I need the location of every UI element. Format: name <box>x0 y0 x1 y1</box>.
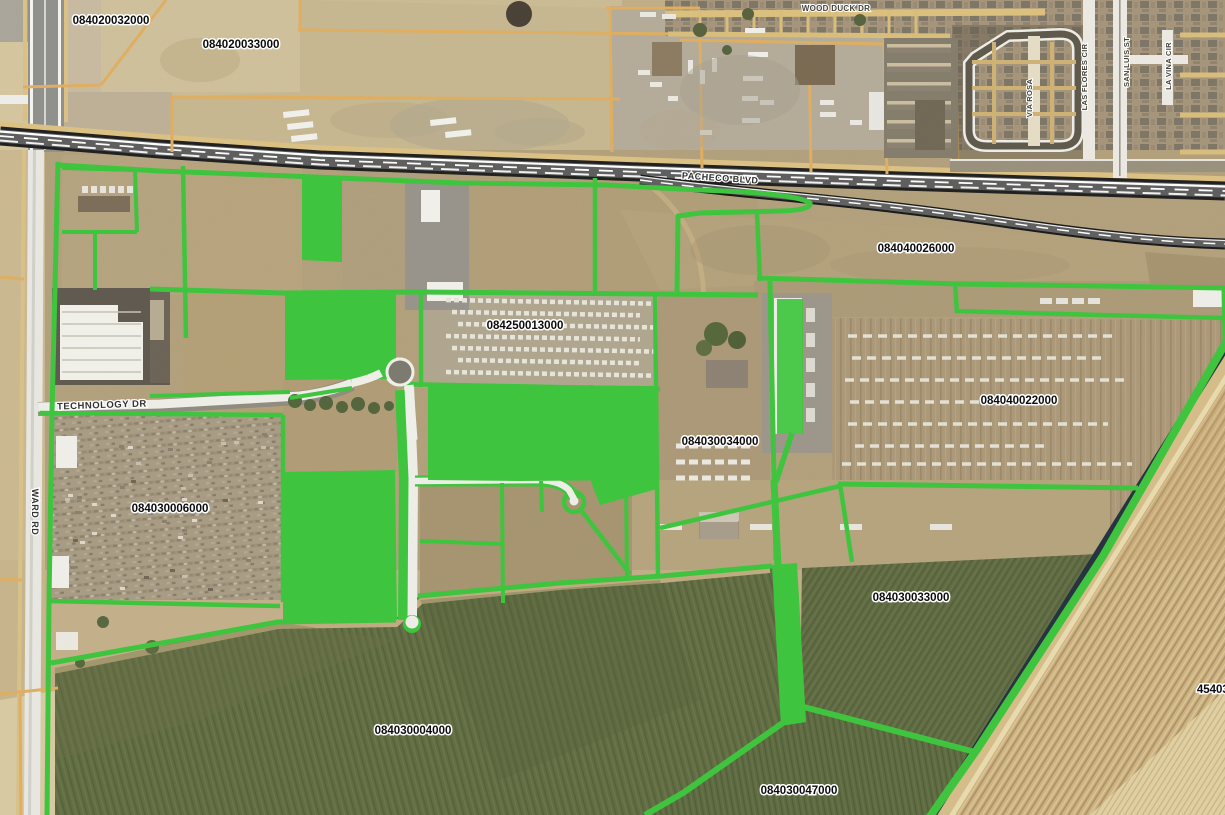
svg-text:VIA ROSA: VIA ROSA <box>1025 79 1034 118</box>
svg-text:084030004000: 084030004000 <box>375 725 452 737</box>
svg-text:LA VINA CIR: LA VINA CIR <box>1164 42 1173 90</box>
svg-text:084020032000: 084020032000 <box>73 15 150 27</box>
svg-text:084250013000: 084250013000 <box>487 320 564 332</box>
svg-text:084040022000: 084040022000 <box>981 395 1058 407</box>
svg-text:454030: 454030 <box>1197 684 1225 696</box>
svg-text:084040026000: 084040026000 <box>878 243 955 255</box>
svg-text:084030033000: 084030033000 <box>873 592 950 604</box>
svg-text:LAS FLORES CIR: LAS FLORES CIR <box>1080 43 1089 110</box>
svg-text:SAN LUIS ST: SAN LUIS ST <box>1122 37 1131 87</box>
svg-text:WARD RD: WARD RD <box>30 489 40 536</box>
svg-text:084030006000: 084030006000 <box>132 503 209 515</box>
svg-text:084020033000: 084020033000 <box>203 39 280 51</box>
svg-text:WOOD DUCK DR: WOOD DUCK DR <box>802 4 870 13</box>
svg-text:084030034000: 084030034000 <box>682 436 759 448</box>
svg-text:084030047000: 084030047000 <box>761 785 838 797</box>
